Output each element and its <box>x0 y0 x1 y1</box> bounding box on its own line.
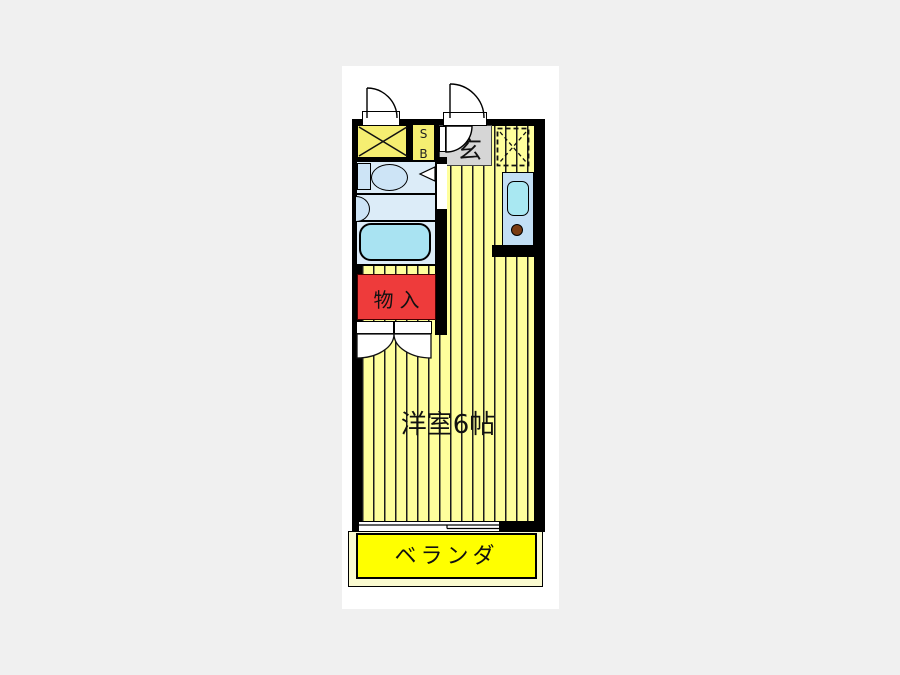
floorplan-canvas: S B 玄 物入 ベランダ 洋室6帖 <box>0 0 900 675</box>
toilet-icon <box>371 164 408 191</box>
kitchen-wall-stub <box>492 245 534 257</box>
bathtub-icon <box>359 223 431 261</box>
kitchen-sink-icon <box>507 181 529 216</box>
shoebox-label-b: B <box>419 147 427 161</box>
main-entry-doorway-leaf <box>443 112 487 126</box>
storage-closet <box>357 274 436 320</box>
shoebox-label-s: S <box>420 127 428 141</box>
toilet-tank-icon <box>357 163 371 190</box>
veranda <box>356 533 537 579</box>
storage-door-center-tick <box>393 321 395 334</box>
entrance-door-leaf <box>439 126 446 152</box>
shoebox: S B <box>413 125 434 163</box>
stove-burner-icon <box>511 224 523 236</box>
left-doorway-leaf <box>362 111 400 126</box>
bathroom-divider-1 <box>355 193 437 195</box>
closet-box <box>358 126 408 157</box>
bathroom-divider-2 <box>355 220 437 222</box>
wall-right <box>534 119 545 532</box>
